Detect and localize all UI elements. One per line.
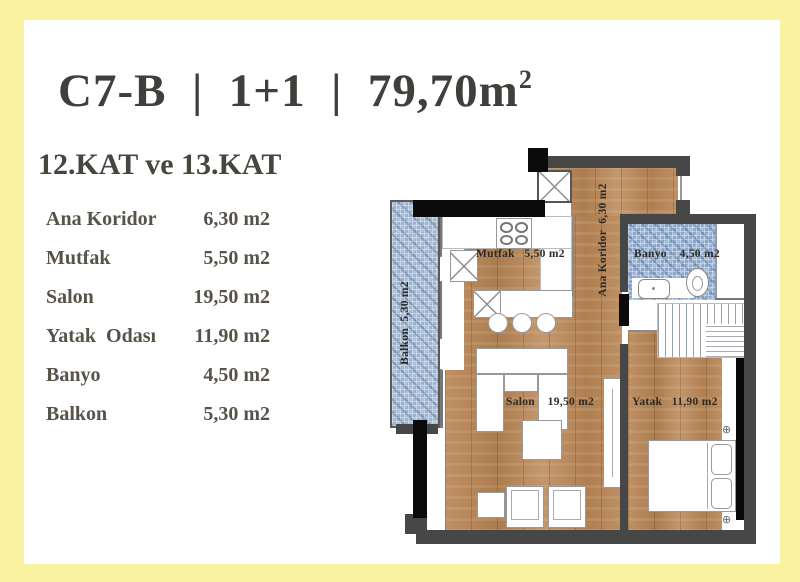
wall-bathroom-top bbox=[620, 214, 756, 224]
room-area: 11,90 m2 bbox=[194, 325, 270, 348]
floor-subtitle: 12.KAT ve 13.KAT bbox=[38, 148, 281, 182]
wall-right bbox=[744, 214, 756, 536]
list-item: Yatak Odası11,90 m2 bbox=[46, 325, 270, 348]
wall-kitchen-top-black bbox=[413, 200, 538, 217]
room-name: Ana Koridor bbox=[46, 208, 157, 231]
room-name: Salon bbox=[46, 286, 94, 309]
bar-stool-icon bbox=[512, 313, 532, 333]
wall-corridor-top bbox=[538, 156, 690, 168]
title-superscript: 2 bbox=[519, 65, 532, 94]
wall-shaft-stub bbox=[528, 200, 545, 217]
wall-living-bedroom bbox=[620, 344, 628, 530]
toilet-icon bbox=[686, 268, 709, 297]
page-title: C7-B | 1+1 | 79,70m2 bbox=[58, 64, 532, 118]
bar-stool-icon bbox=[488, 313, 508, 333]
list-item: Banyo4,50 m2 bbox=[46, 364, 270, 387]
frame-border-left bbox=[0, 0, 24, 582]
room-area: 19,50 m2 bbox=[193, 286, 270, 309]
side-table bbox=[477, 492, 505, 518]
stove-burners bbox=[497, 219, 531, 248]
pillow-icon bbox=[711, 478, 732, 509]
list-item: Mutfak5,50 m2 bbox=[46, 247, 270, 270]
room-area: 5,30 m2 bbox=[203, 403, 270, 426]
list-item: Ana Koridor6,30 m2 bbox=[46, 208, 270, 231]
frame-border-bottom bbox=[0, 564, 800, 582]
room-area-list: Ana Koridor6,30 m2 Mutfak5,50 m2 Salon19… bbox=[46, 208, 270, 442]
sofa-back bbox=[476, 348, 568, 374]
living-label: Salon 19,50 m2 bbox=[506, 396, 594, 408]
wall-hall-column bbox=[619, 294, 629, 326]
frame-border-top bbox=[0, 0, 800, 20]
bathroom bbox=[628, 222, 746, 300]
kitchen-sink-icon bbox=[450, 250, 478, 282]
room-area: 4,50 m2 bbox=[203, 364, 270, 387]
tv-unit-groove bbox=[612, 389, 613, 477]
bedroom-label: Yatak 11,90 m2 bbox=[632, 396, 718, 408]
room-name: Banyo bbox=[46, 364, 100, 387]
bed-sheet-line bbox=[707, 443, 708, 509]
armchair-icon bbox=[506, 486, 544, 528]
wall-corridor-bathroom bbox=[620, 222, 628, 292]
sofa-seat bbox=[504, 374, 538, 392]
room-area: 6,30 m2 bbox=[203, 208, 270, 231]
wall-kitchen-corridor-line bbox=[572, 216, 574, 296]
bar-stool-icon bbox=[536, 313, 556, 333]
wall-column-topleft bbox=[528, 148, 548, 172]
balcony bbox=[390, 200, 440, 428]
corridor-label: Ana Koridor 6,30 m2 bbox=[597, 183, 609, 297]
armchair-icon bbox=[548, 486, 586, 528]
stove-icon bbox=[496, 218, 532, 249]
list-item: Salon19,50 m2 bbox=[46, 286, 270, 309]
list-item: Balkon5,30 m2 bbox=[46, 403, 270, 426]
wall-bottom bbox=[416, 530, 756, 544]
entry-threshold bbox=[545, 203, 571, 216]
wall-entry-stub-top bbox=[676, 156, 690, 176]
bathroom-label: Banyo 4,50 m2 bbox=[634, 248, 720, 260]
floorplan-card: C7-B | 1+1 | 79,70m2 12.KAT ve 13.KAT An… bbox=[0, 0, 800, 582]
bathroom-sink-icon bbox=[638, 279, 670, 299]
toilet-bowl bbox=[692, 276, 703, 291]
title-text: C7-B | 1+1 | 79,70m bbox=[58, 65, 519, 117]
frame-border-right bbox=[780, 0, 800, 582]
center-mark-icon: ⊕ bbox=[722, 424, 731, 435]
room-name: Mutfak bbox=[46, 247, 110, 270]
coffee-table bbox=[522, 420, 562, 460]
armchair-seat bbox=[553, 490, 581, 520]
room-name: Yatak Odası bbox=[46, 325, 156, 348]
wall-left-black bbox=[413, 420, 427, 518]
kitchen-label: Mutfak 5,50 m2 bbox=[476, 248, 565, 260]
sofa-chaise-left bbox=[476, 374, 504, 432]
center-mark-icon: ⊕ bbox=[722, 514, 731, 525]
pillow-icon bbox=[711, 444, 732, 475]
bed-icon bbox=[648, 440, 736, 512]
wardrobe bbox=[657, 303, 752, 358]
floorplan-drawing: ⊕ ⊕ Mutfak 5,50 m2 Banyo 4,50 m2 Salon 1… bbox=[388, 148, 760, 546]
room-area: 5,50 m2 bbox=[203, 247, 270, 270]
armchair-seat bbox=[511, 490, 539, 520]
shaft-icon bbox=[537, 170, 572, 203]
drain-dot bbox=[652, 287, 655, 290]
room-name: Balkon bbox=[46, 403, 107, 426]
balcony-label: Balkon 5,30 m2 bbox=[399, 268, 411, 378]
